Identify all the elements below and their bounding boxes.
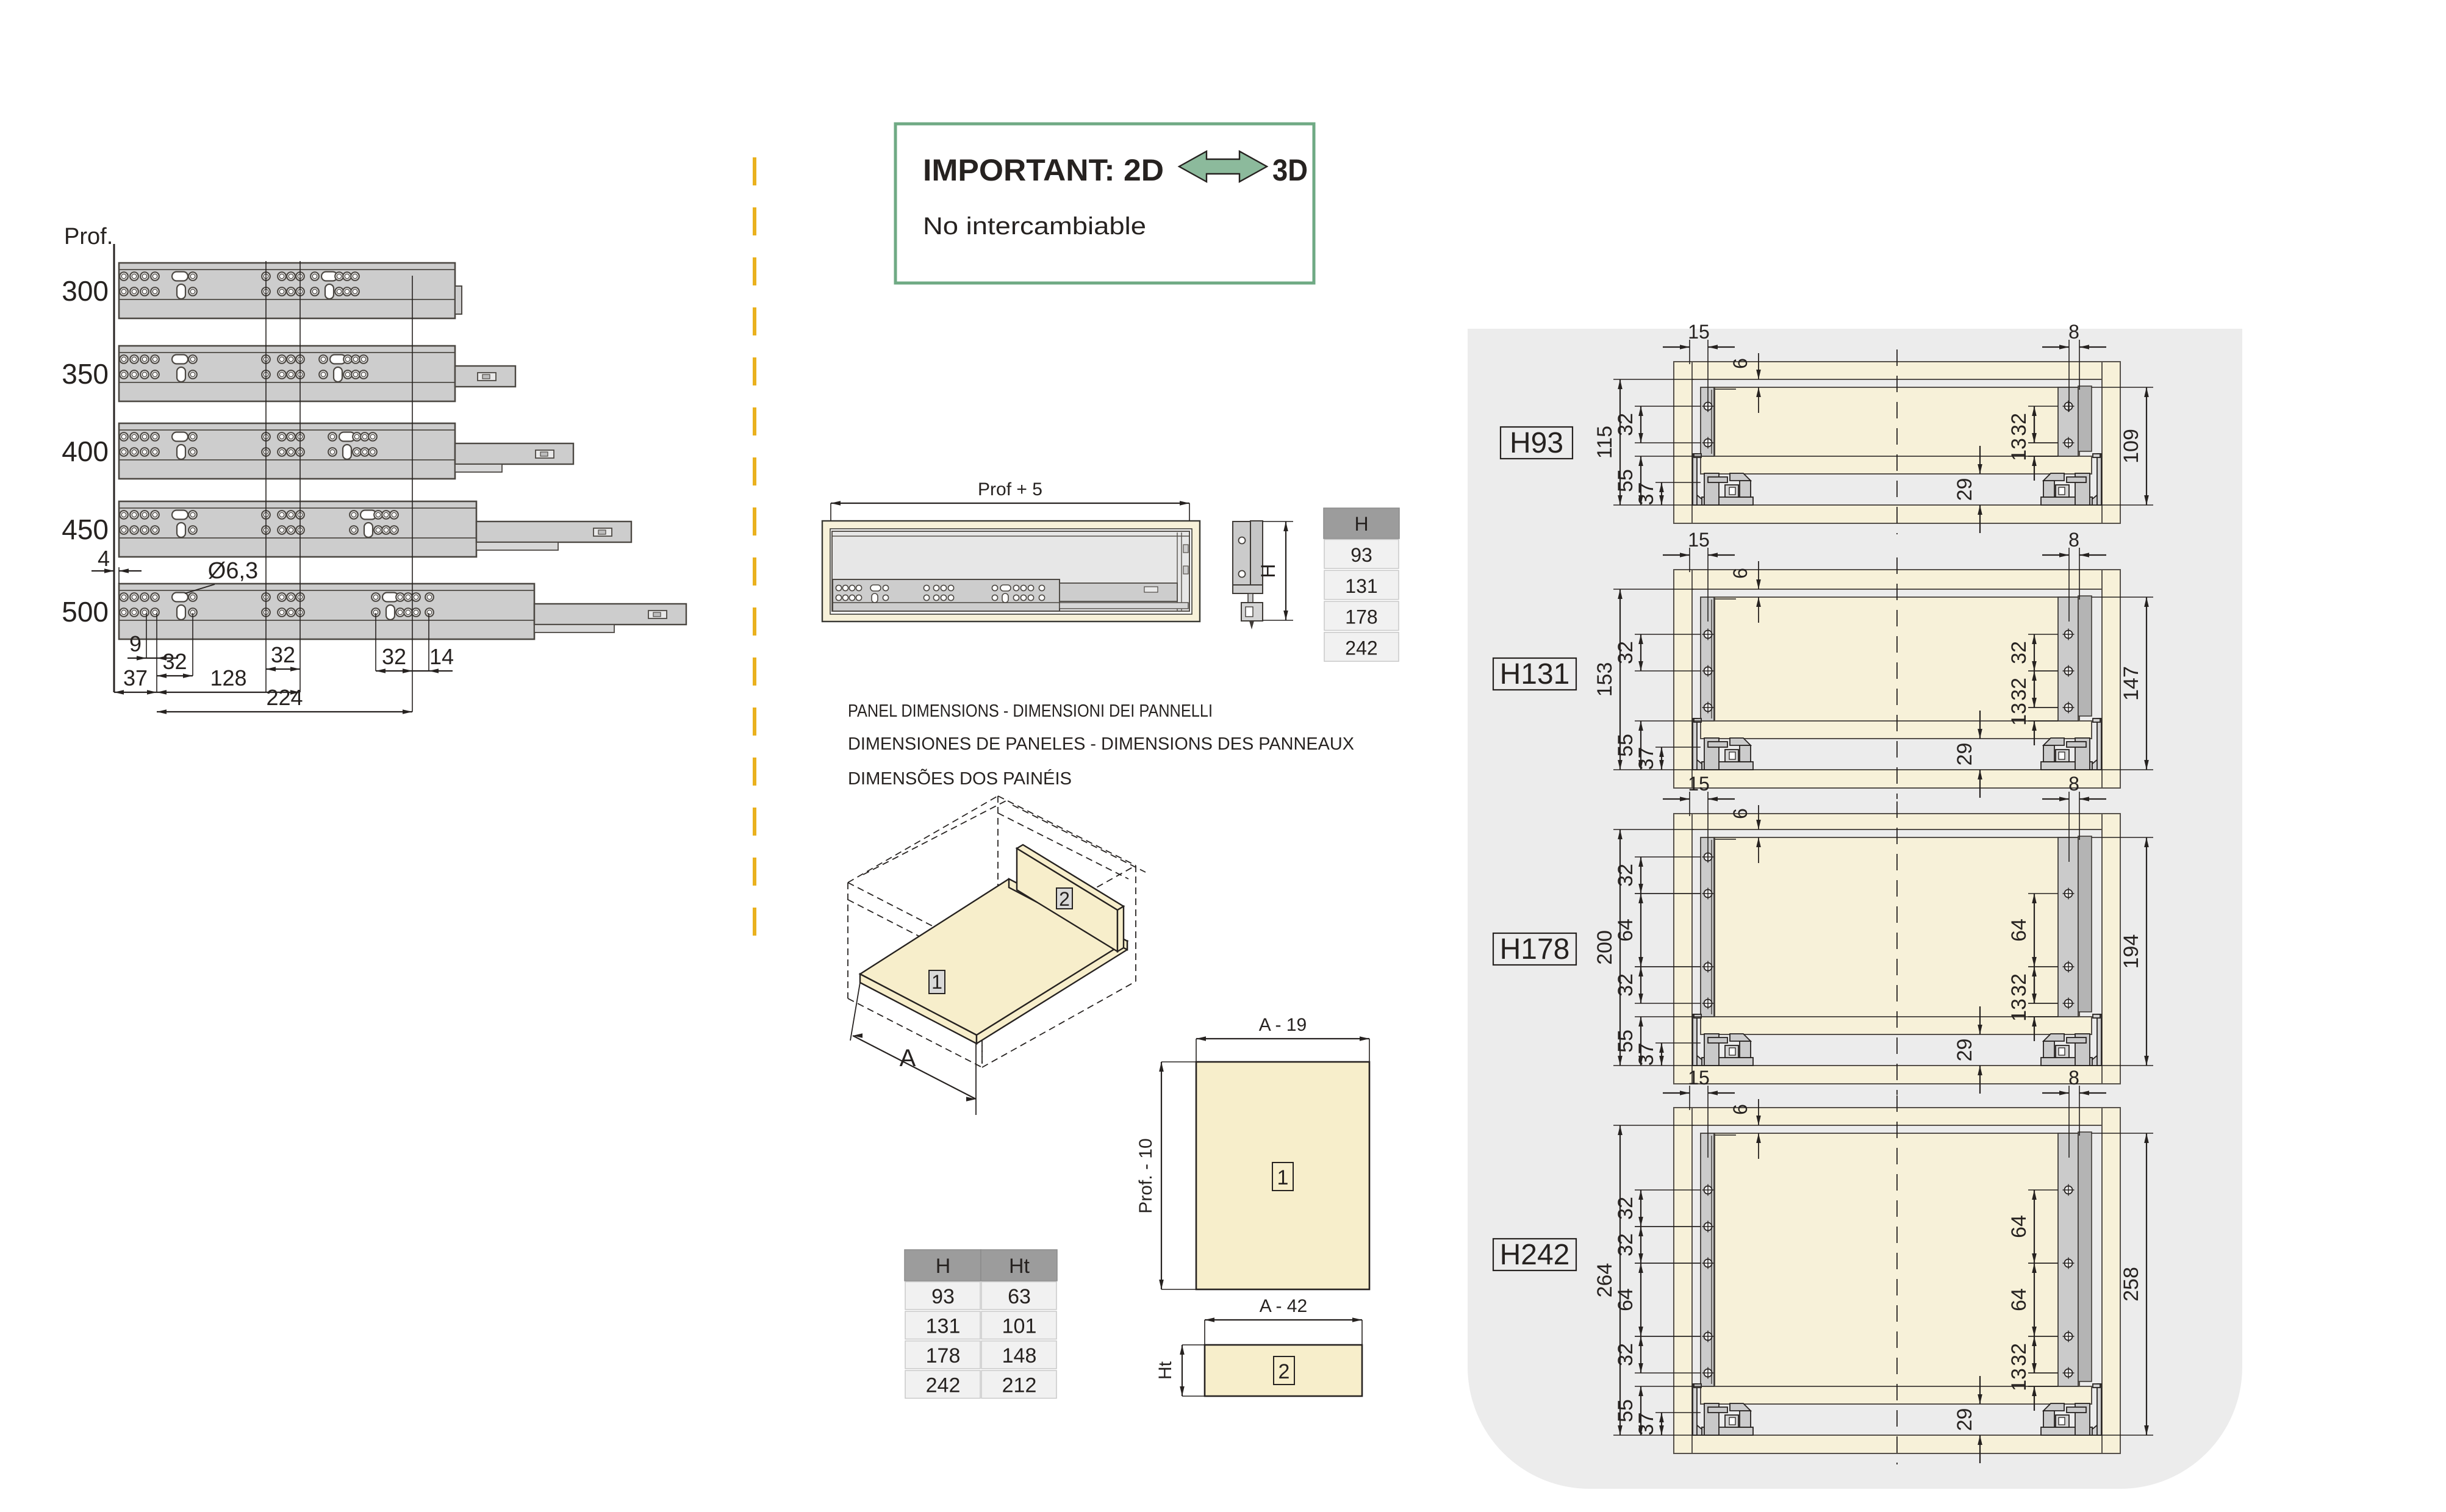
svg-text:32: 32: [1614, 1343, 1637, 1366]
svg-text:13: 13: [2007, 998, 2031, 1022]
svg-text:55: 55: [1614, 734, 1637, 757]
svg-text:37: 37: [1635, 1413, 1658, 1436]
svg-text:Prof. - 10: Prof. - 10: [1136, 1138, 1156, 1213]
svg-text:93: 93: [931, 1285, 955, 1308]
svg-text:93: 93: [1350, 544, 1372, 566]
svg-text:500: 500: [62, 596, 109, 628]
svg-text:29: 29: [1953, 1408, 1976, 1431]
svg-text:32: 32: [382, 644, 406, 669]
svg-text:55: 55: [1614, 1030, 1637, 1053]
svg-text:300: 300: [62, 275, 109, 307]
svg-text:3D: 3D: [1272, 153, 1308, 187]
svg-text:IMPORTANT: 2D: IMPORTANT: 2D: [923, 153, 1164, 187]
svg-text:148: 148: [1002, 1344, 1037, 1367]
svg-text:131: 131: [1345, 575, 1377, 597]
svg-text:131: 131: [926, 1315, 961, 1338]
svg-text:32: 32: [2007, 413, 2031, 436]
svg-text:194: 194: [2120, 934, 2143, 969]
svg-text:H178: H178: [1500, 933, 1570, 966]
svg-text:37: 37: [123, 665, 148, 690]
svg-text:6: 6: [1729, 568, 1751, 579]
svg-text:101: 101: [1002, 1315, 1037, 1338]
svg-text:32: 32: [1614, 1197, 1637, 1220]
svg-text:8: 8: [2068, 773, 2079, 795]
svg-text:6: 6: [1729, 358, 1751, 369]
svg-text:Ht: Ht: [1009, 1255, 1030, 1278]
svg-text:H242: H242: [1500, 1239, 1570, 1271]
svg-text:200: 200: [1593, 930, 1616, 965]
svg-text:224: 224: [266, 685, 303, 710]
svg-text:64: 64: [1614, 919, 1637, 942]
svg-text:32: 32: [2007, 641, 2031, 664]
svg-text:A - 19: A - 19: [1259, 1015, 1307, 1035]
svg-text:H: H: [936, 1255, 951, 1278]
svg-text:15: 15: [1688, 529, 1710, 551]
svg-text:1: 1: [1277, 1166, 1289, 1189]
svg-text:258: 258: [2120, 1267, 2143, 1302]
svg-text:37: 37: [1635, 747, 1658, 770]
svg-text:115: 115: [1593, 426, 1616, 459]
svg-text:8: 8: [2068, 321, 2079, 343]
svg-text:32: 32: [2007, 1343, 2031, 1366]
svg-text:Prof.: Prof.: [64, 224, 113, 249]
svg-text:2: 2: [1279, 1360, 1290, 1383]
svg-text:64: 64: [2007, 1288, 2031, 1311]
svg-text:32: 32: [2007, 973, 2031, 997]
svg-text:13: 13: [2007, 1368, 2031, 1391]
svg-text:32: 32: [1614, 973, 1637, 997]
svg-text:109: 109: [2120, 429, 2143, 464]
svg-text:64: 64: [2007, 1215, 2031, 1238]
svg-text:H131: H131: [1500, 658, 1570, 690]
svg-text:178: 178: [1345, 606, 1377, 628]
svg-text:32: 32: [1614, 413, 1637, 436]
svg-text:63: 63: [1008, 1285, 1031, 1308]
svg-text:64: 64: [1614, 1288, 1637, 1311]
svg-text:No intercambiable: No intercambiable: [923, 213, 1146, 240]
svg-text:15: 15: [1688, 321, 1710, 343]
svg-text:32: 32: [271, 642, 295, 667]
svg-text:37: 37: [1635, 482, 1658, 506]
svg-text:350: 350: [62, 358, 109, 390]
svg-text:DIMENSIONES DE PANELES - DIMEN: DIMENSIONES DE PANELES - DIMENSIONS DES …: [848, 734, 1354, 754]
svg-text:H: H: [1257, 564, 1279, 578]
svg-text:32: 32: [2007, 678, 2031, 701]
svg-text:128: 128: [210, 665, 246, 690]
svg-text:64: 64: [2007, 919, 2031, 942]
svg-text:15: 15: [1688, 773, 1710, 795]
svg-text:32: 32: [1614, 864, 1637, 887]
svg-text:13: 13: [2007, 703, 2031, 726]
svg-text:178: 178: [926, 1344, 961, 1367]
svg-text:153: 153: [1593, 662, 1616, 697]
svg-text:2: 2: [1059, 888, 1070, 910]
svg-text:4: 4: [98, 546, 110, 571]
svg-text:8: 8: [2068, 1067, 2079, 1089]
svg-text:450: 450: [62, 514, 109, 545]
svg-text:6: 6: [1729, 808, 1751, 819]
svg-text:1: 1: [931, 971, 942, 993]
svg-text:Prof + 5: Prof + 5: [978, 479, 1042, 500]
svg-text:29: 29: [1953, 478, 1976, 501]
svg-text:400: 400: [62, 435, 109, 467]
svg-text:8: 8: [2068, 529, 2079, 551]
svg-text:A: A: [900, 1045, 916, 1072]
svg-text:32: 32: [162, 649, 187, 674]
svg-text:6: 6: [1729, 1104, 1751, 1115]
svg-text:212: 212: [1002, 1374, 1037, 1397]
svg-text:37: 37: [1635, 1043, 1658, 1066]
svg-text:32: 32: [1614, 1233, 1637, 1256]
svg-text:Ht: Ht: [1155, 1361, 1175, 1380]
svg-text:A - 42: A - 42: [1260, 1296, 1307, 1316]
svg-text:32: 32: [1614, 641, 1637, 664]
svg-text:H93: H93: [1510, 427, 1563, 459]
svg-text:55: 55: [1614, 469, 1637, 492]
svg-text:PANEL DIMENSIONS - DIMENSIONI: PANEL DIMENSIONS - DIMENSIONI DEI PANNEL…: [848, 701, 1213, 721]
svg-text:242: 242: [1345, 637, 1377, 659]
svg-text:14: 14: [429, 644, 454, 669]
svg-text:15: 15: [1688, 1067, 1710, 1089]
svg-text:29: 29: [1953, 1039, 1976, 1062]
svg-text:9: 9: [129, 631, 142, 656]
svg-text:DIMENSÕES DOS PAINÉIS: DIMENSÕES DOS PAINÉIS: [848, 768, 1072, 789]
svg-text:242: 242: [926, 1374, 961, 1397]
svg-text:Ø6,3: Ø6,3: [208, 558, 258, 584]
svg-text:147: 147: [2120, 666, 2143, 701]
svg-text:H: H: [1354, 513, 1368, 535]
svg-text:29: 29: [1953, 743, 1976, 766]
svg-text:264: 264: [1593, 1263, 1616, 1298]
svg-text:55: 55: [1614, 1399, 1637, 1422]
svg-text:13: 13: [2007, 438, 2031, 461]
